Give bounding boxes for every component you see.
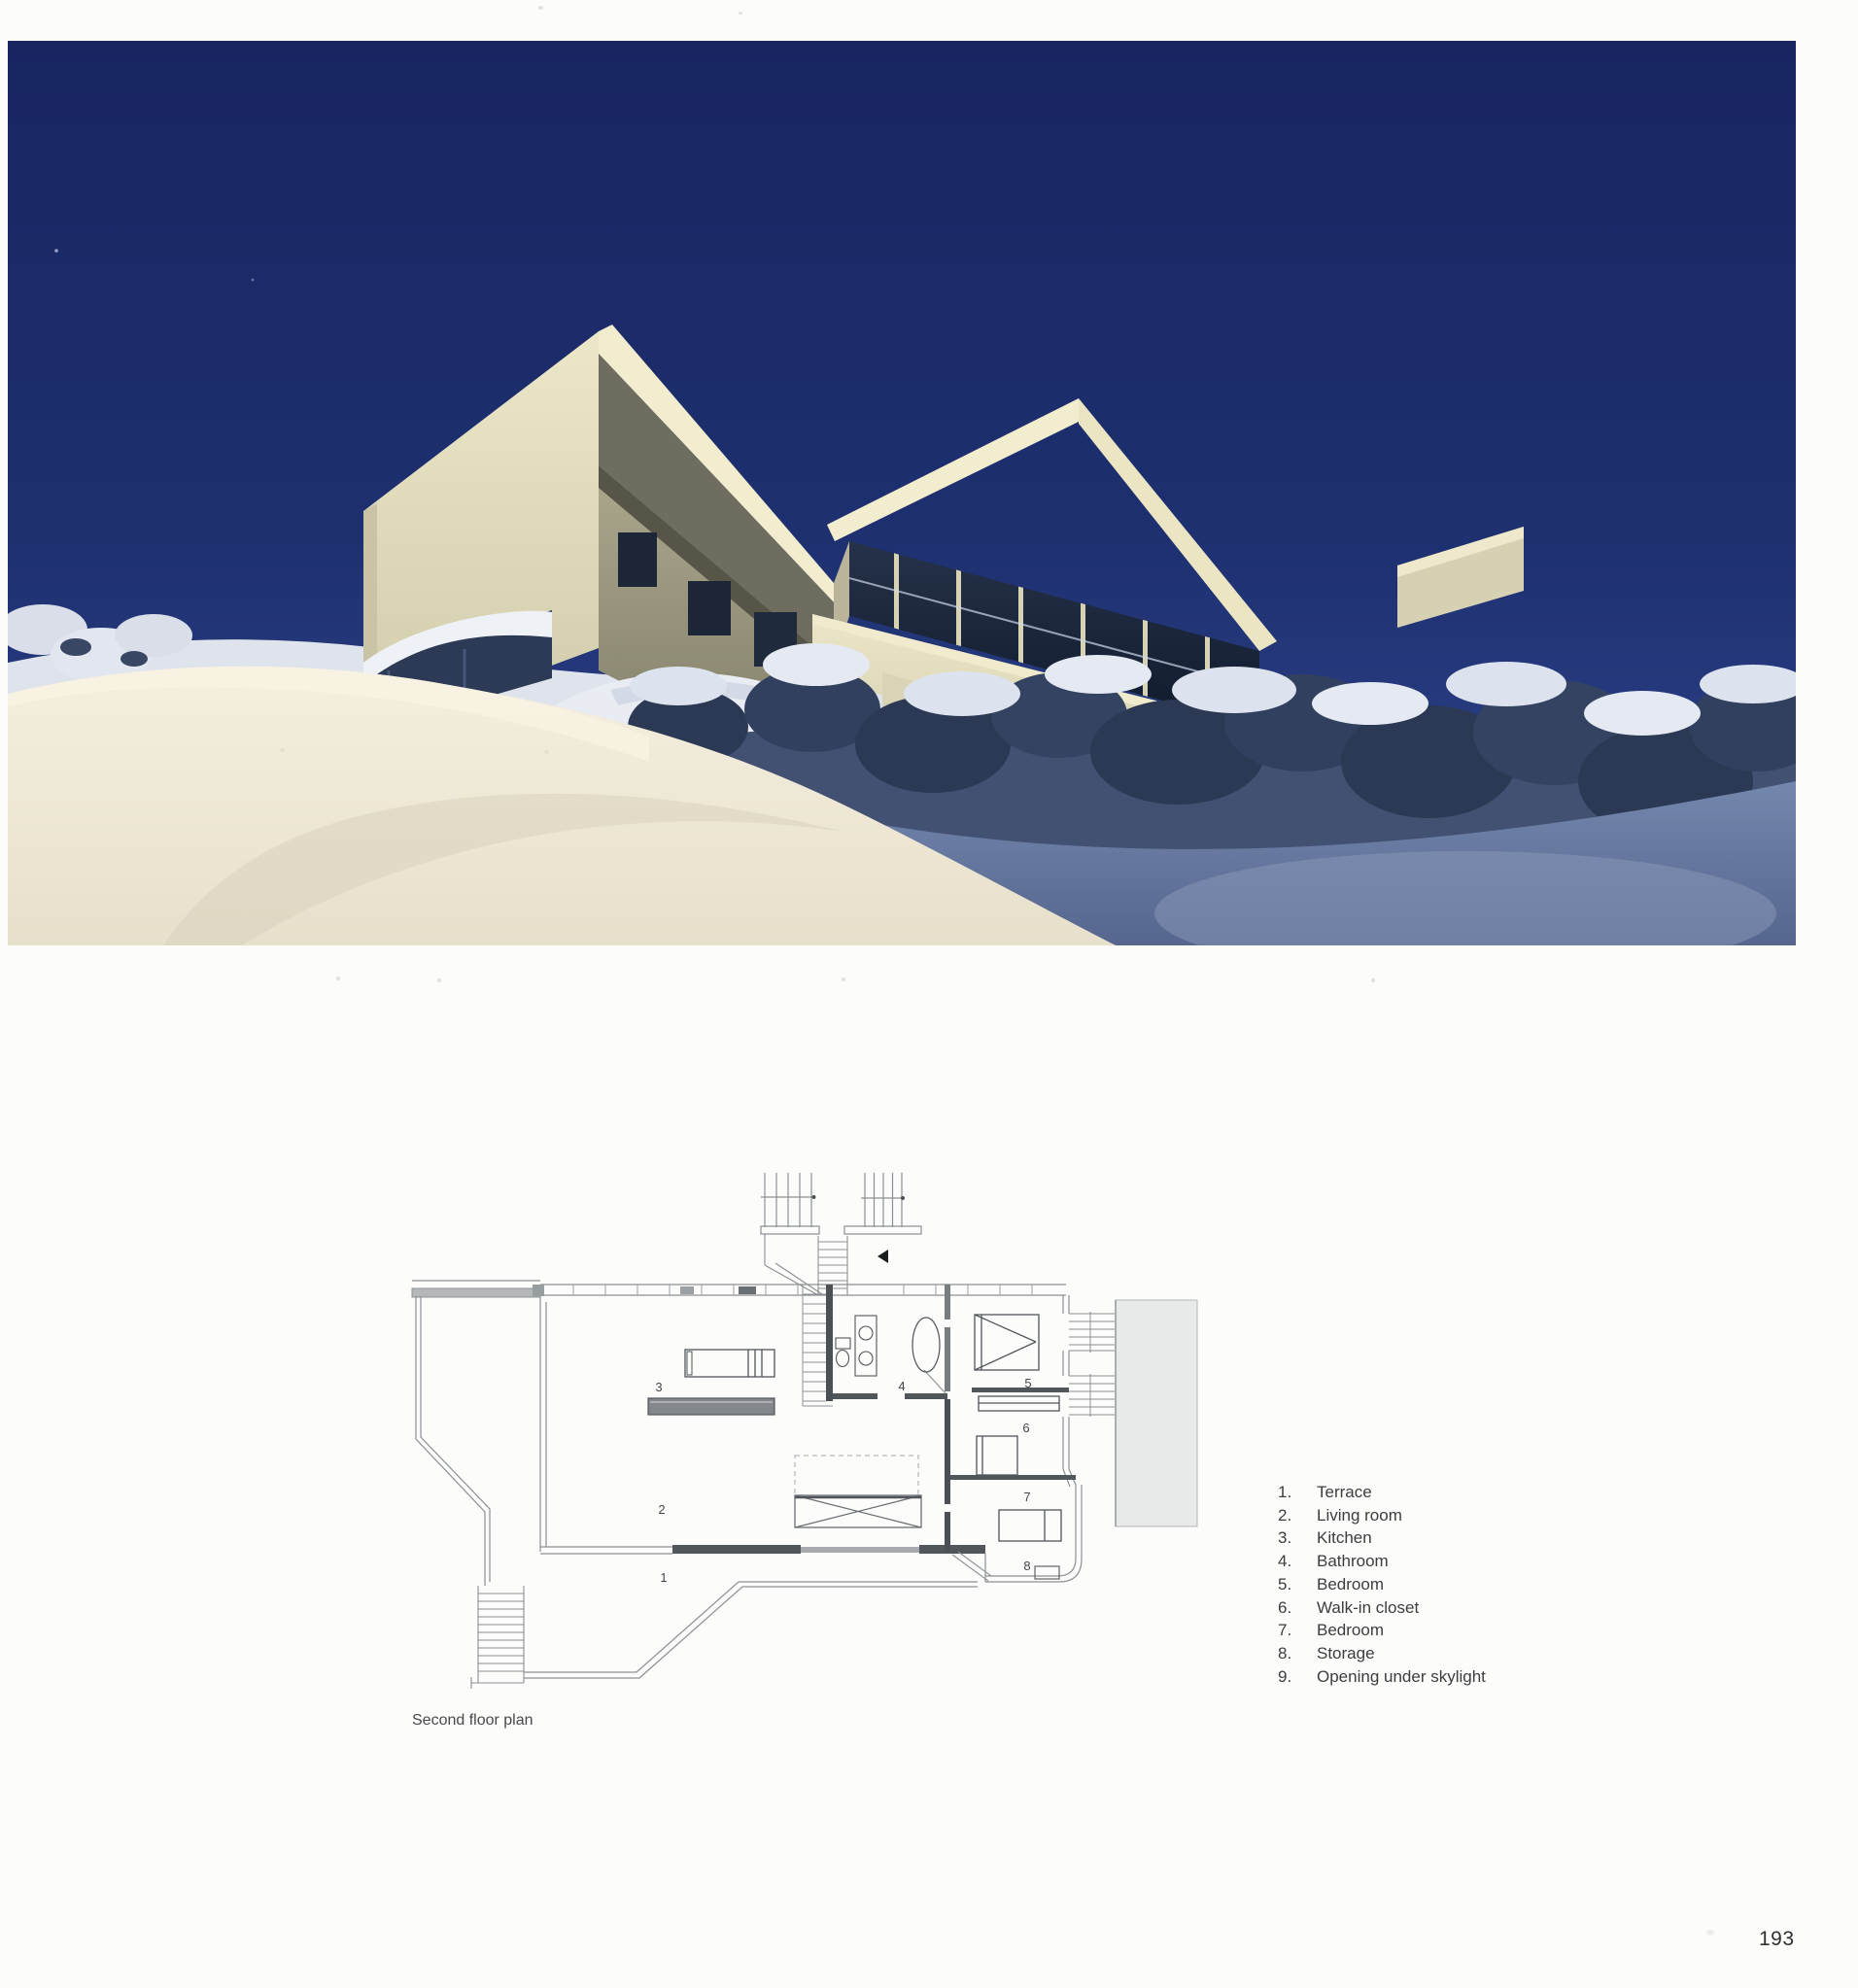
dust-speck	[1706, 1930, 1714, 1936]
legend-item: 6. Walk-in closet	[1278, 1596, 1486, 1620]
wall-corner	[533, 1285, 544, 1296]
legend-item: 5. Bedroom	[1278, 1573, 1486, 1596]
floor-plan-drawing: 1 2 3 4 5 6 7 8	[403, 1161, 1210, 1700]
legend-item-label: Kitchen	[1317, 1526, 1486, 1550]
wall-segment	[672, 1545, 801, 1554]
bridge-hatch	[1069, 1312, 1115, 1417]
legend-item-label: Walk-in closet	[1317, 1596, 1486, 1620]
bath-wall	[833, 1393, 877, 1399]
skylight-opening	[795, 1456, 921, 1527]
legend-item: 7. Bedroom	[1278, 1619, 1486, 1642]
plan-room-label-6: 6	[1022, 1421, 1029, 1435]
legend-item-label: Bedroom	[1317, 1619, 1486, 1642]
legend-item-label: Terrace	[1317, 1481, 1486, 1504]
legend-item-label: Bathroom	[1317, 1550, 1486, 1573]
bath-wall	[905, 1393, 947, 1399]
dust-speck	[739, 12, 742, 15]
terrace-top-band	[412, 1288, 540, 1297]
plan-room-label-7: 7	[1023, 1490, 1030, 1504]
book-page: 1 2 3 4 5 6 7 8 1. Terrace 2. Living roo…	[0, 0, 1858, 1988]
legend-item-number: 1.	[1278, 1481, 1317, 1504]
spine-wall	[945, 1285, 950, 1552]
furniture	[685, 1315, 1061, 1579]
legend-item-label: Storage	[1317, 1642, 1486, 1665]
legend-item-number: 8.	[1278, 1642, 1317, 1665]
legend-item-label: Bedroom	[1317, 1573, 1486, 1596]
legend-item: 1. Terrace	[1278, 1481, 1486, 1504]
legend-item-number: 3.	[1278, 1526, 1317, 1550]
dust-speck	[1371, 978, 1375, 982]
legend-item-number: 4.	[1278, 1550, 1317, 1573]
legend-item: 9. Opening under skylight	[1278, 1665, 1486, 1689]
legend-item-number: 7.	[1278, 1619, 1317, 1642]
entry-pergola	[761, 1173, 921, 1234]
legend-item: 2. Living room	[1278, 1504, 1486, 1527]
room-divider	[972, 1388, 1069, 1392]
dust-speck	[842, 977, 845, 981]
plan-room-label-8: 8	[1023, 1559, 1030, 1573]
plan-caption: Second floor plan	[412, 1712, 533, 1730]
plan-room-label-5: 5	[1024, 1376, 1031, 1390]
page-number: 193	[1759, 1928, 1795, 1951]
legend-item: 3. Kitchen	[1278, 1526, 1486, 1550]
glazed-segment	[801, 1547, 919, 1553]
sky-speck	[252, 279, 255, 282]
room-legend: 1. Terrace 2. Living room 3. Kitchen 4. …	[1278, 1481, 1486, 1688]
plan-room-label-2: 2	[658, 1502, 665, 1517]
terrace-outline	[416, 1296, 978, 1678]
dust-speck	[336, 977, 340, 980]
wall-segment	[919, 1545, 985, 1554]
photo-canvas	[8, 41, 1796, 945]
legend-item-number: 5.	[1278, 1573, 1317, 1596]
entry-stair	[765, 1234, 847, 1295]
terrace-stair	[471, 1586, 524, 1689]
plan-room-label-1: 1	[660, 1570, 667, 1585]
dust-speck	[280, 748, 285, 752]
plan-room-label-3: 3	[655, 1380, 662, 1394]
photo-winter-house	[8, 41, 1796, 945]
legend-item: 8. Storage	[1278, 1642, 1486, 1665]
stair-wall	[826, 1285, 833, 1401]
legend-item-label: Living room	[1317, 1504, 1486, 1527]
legend-item-number: 6.	[1278, 1596, 1317, 1620]
plan-room-label-4: 4	[898, 1379, 905, 1393]
dust-speck	[544, 750, 549, 754]
legend-item: 4. Bathroom	[1278, 1550, 1486, 1573]
pergola-post	[812, 1195, 816, 1199]
dust-speck	[538, 6, 543, 10]
legend-item-label: Opening under skylight	[1317, 1665, 1486, 1689]
window-sill	[680, 1286, 694, 1294]
legend-item-number: 2.	[1278, 1504, 1317, 1527]
pergola-post	[901, 1196, 905, 1200]
window-sill	[739, 1286, 756, 1294]
adjacent-roof-block	[1116, 1300, 1197, 1526]
north-arrow-icon	[877, 1250, 888, 1263]
door-leaf	[924, 1370, 946, 1393]
legend-item-number: 9.	[1278, 1665, 1317, 1689]
floor-plan-svg: 1 2 3 4 5 6 7 8	[403, 1161, 1210, 1700]
dust-speck	[437, 978, 441, 982]
sky-speck	[54, 249, 58, 253]
kitchen-counter	[648, 1398, 774, 1415]
room-divider	[950, 1475, 1076, 1480]
